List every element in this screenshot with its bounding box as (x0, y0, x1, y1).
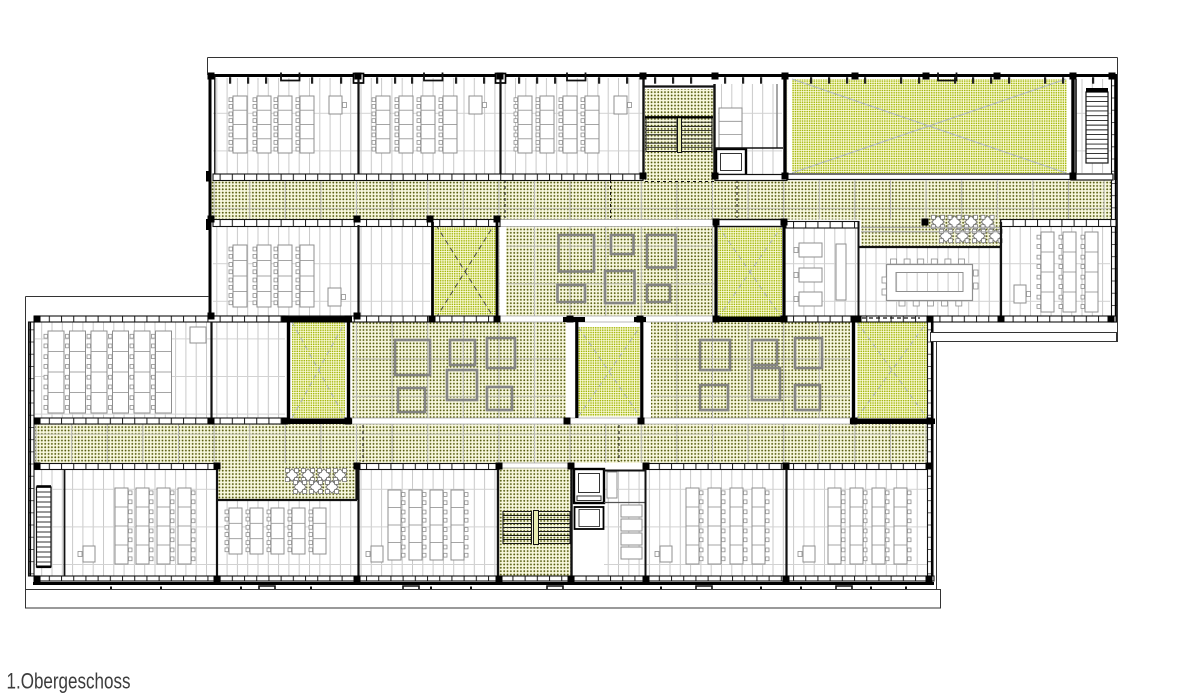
svg-text:1.Obergeschoss: 1.Obergeschoss (7, 669, 131, 694)
